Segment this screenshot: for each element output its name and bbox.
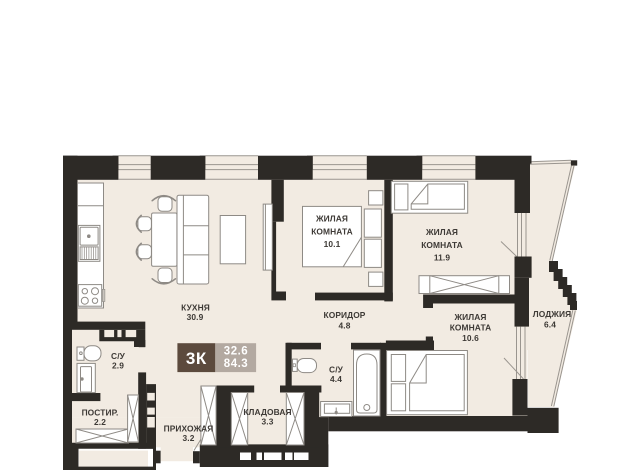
- svg-text:ПРИХОЖАЯ: ПРИХОЖАЯ: [164, 424, 214, 434]
- svg-text:2.9: 2.9: [112, 361, 124, 371]
- svg-text:11.9: 11.9: [434, 253, 450, 263]
- svg-text:10.6: 10.6: [462, 333, 479, 343]
- svg-text:ЖИЛАЯ: ЖИЛАЯ: [425, 227, 458, 237]
- svg-text:3К: 3К: [186, 349, 207, 368]
- svg-text:С/У: С/У: [111, 351, 126, 361]
- svg-text:2.2: 2.2: [94, 417, 106, 427]
- svg-text:С/У: С/У: [329, 365, 344, 375]
- svg-text:84.3: 84.3: [224, 358, 248, 370]
- svg-text:ЖИЛАЯ: ЖИЛАЯ: [453, 312, 486, 322]
- svg-text:30.9: 30.9: [187, 312, 204, 322]
- svg-text:6.4: 6.4: [544, 320, 556, 330]
- svg-text:КУХНЯ: КУХНЯ: [181, 303, 210, 313]
- svg-text:КОРИДОР: КОРИДОР: [324, 310, 366, 320]
- svg-text:КЛАДОВАЯ: КЛАДОВАЯ: [243, 407, 291, 417]
- svg-text:4.8: 4.8: [339, 321, 351, 331]
- svg-text:32.6: 32.6: [224, 346, 248, 358]
- svg-text:3.3: 3.3: [262, 417, 274, 427]
- svg-text:ПОСТИР.: ПОСТИР.: [82, 408, 119, 418]
- svg-text:3.2: 3.2: [183, 433, 195, 443]
- svg-text:КОМНАТА: КОМНАТА: [421, 240, 463, 250]
- svg-text:4.4: 4.4: [330, 374, 342, 384]
- svg-text:ЖИЛАЯ: ЖИЛАЯ: [315, 214, 348, 224]
- svg-text:КОМНАТА: КОМНАТА: [311, 227, 353, 237]
- svg-text:10.1: 10.1: [324, 239, 341, 249]
- svg-text:КОМНАТА: КОМНАТА: [450, 323, 492, 333]
- svg-text:ЛОДЖИЯ: ЛОДЖИЯ: [533, 309, 571, 319]
